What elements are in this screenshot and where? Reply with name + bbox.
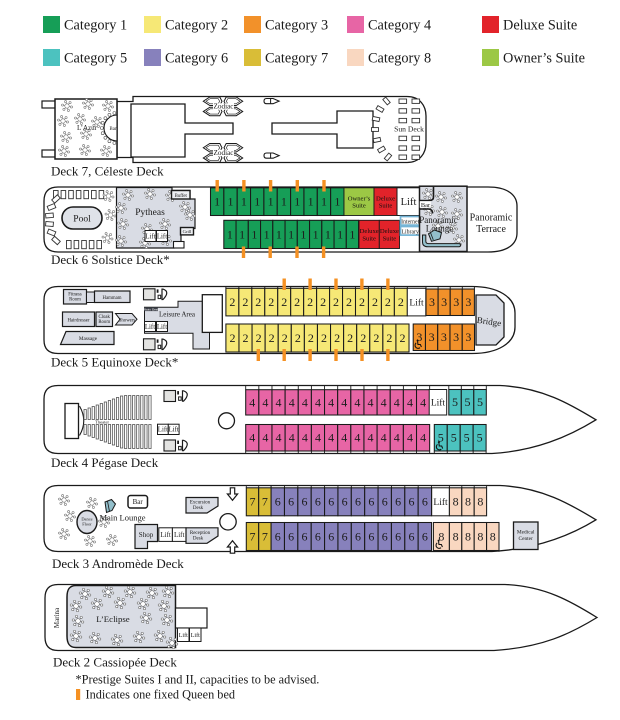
svg-text:L’Azur: L’Azur bbox=[77, 124, 98, 132]
svg-text:Lift: Lift bbox=[145, 233, 155, 240]
svg-text:6: 6 bbox=[328, 495, 334, 509]
svg-text:8: 8 bbox=[465, 495, 471, 509]
svg-text:Reception: Reception bbox=[190, 531, 211, 536]
svg-text:4: 4 bbox=[354, 395, 360, 409]
svg-text:Deck 4 Pégase Deck: Deck 4 Pégase Deck bbox=[51, 455, 159, 470]
svg-text:6: 6 bbox=[382, 495, 388, 509]
svg-text:Category 3: Category 3 bbox=[265, 18, 328, 34]
svg-text:1: 1 bbox=[321, 195, 327, 209]
svg-text:3: 3 bbox=[429, 295, 435, 309]
svg-text:6: 6 bbox=[275, 529, 281, 543]
svg-text:4: 4 bbox=[407, 395, 413, 409]
svg-text:Center: Center bbox=[519, 536, 534, 542]
svg-text:1: 1 bbox=[325, 227, 331, 241]
svg-text:3: 3 bbox=[453, 295, 459, 309]
svg-text:Suite: Suite bbox=[383, 235, 397, 242]
svg-text:1: 1 bbox=[337, 227, 343, 241]
svg-text:4: 4 bbox=[276, 395, 282, 409]
svg-text:Lift: Lift bbox=[433, 497, 448, 508]
svg-text:6: 6 bbox=[328, 529, 334, 543]
svg-text:Lift: Lift bbox=[158, 427, 168, 434]
svg-text:L’Eclipse: L’Eclipse bbox=[96, 614, 129, 624]
svg-text:Category 5: Category 5 bbox=[64, 51, 127, 67]
svg-text:8: 8 bbox=[490, 529, 496, 543]
svg-text:Deck 3 Andromède Deck: Deck 3 Andromède Deck bbox=[52, 556, 184, 571]
svg-text:Lift: Lift bbox=[157, 233, 167, 240]
svg-text:1: 1 bbox=[228, 195, 234, 209]
svg-text:*Prestige Suites I and II, cap: *Prestige Suites I and II, capacities to… bbox=[76, 673, 320, 687]
svg-text:1: 1 bbox=[214, 195, 220, 209]
svg-text:7: 7 bbox=[262, 529, 268, 543]
svg-text:Lift: Lift bbox=[160, 531, 171, 539]
svg-text:2: 2 bbox=[386, 331, 392, 345]
svg-text:Deck 6 Solstice Deck*: Deck 6 Solstice Deck* bbox=[51, 252, 170, 267]
svg-text:6: 6 bbox=[368, 495, 374, 509]
svg-text:4: 4 bbox=[368, 395, 374, 409]
svg-text:2: 2 bbox=[268, 295, 274, 309]
svg-text:Sun Deck: Sun Deck bbox=[394, 125, 424, 134]
svg-text:Room: Room bbox=[69, 298, 81, 303]
svg-text:5: 5 bbox=[465, 395, 471, 409]
svg-text:Hairdresser: Hairdresser bbox=[67, 319, 90, 324]
svg-text:Lift: Lift bbox=[145, 324, 155, 331]
svg-text:6: 6 bbox=[302, 495, 308, 509]
svg-text:3: 3 bbox=[429, 330, 435, 344]
svg-text:2: 2 bbox=[333, 295, 339, 309]
svg-text:2: 2 bbox=[320, 295, 326, 309]
svg-text:6: 6 bbox=[422, 495, 428, 509]
svg-text:4: 4 bbox=[420, 431, 426, 445]
svg-text:6: 6 bbox=[368, 529, 374, 543]
svg-text:6: 6 bbox=[275, 495, 281, 509]
svg-text:6: 6 bbox=[288, 495, 294, 509]
svg-text:1: 1 bbox=[334, 195, 340, 209]
svg-text:1: 1 bbox=[288, 227, 294, 241]
svg-text:2: 2 bbox=[385, 295, 391, 309]
svg-text:3: 3 bbox=[441, 330, 447, 344]
svg-text:7: 7 bbox=[250, 495, 256, 509]
svg-text:Deluxe: Deluxe bbox=[376, 195, 395, 202]
svg-text:Lift: Lift bbox=[431, 397, 446, 408]
svg-text:Main Lounge: Main Lounge bbox=[99, 513, 145, 523]
svg-text:Massage: Massage bbox=[79, 336, 98, 342]
svg-text:2: 2 bbox=[372, 295, 378, 309]
svg-text:2: 2 bbox=[269, 331, 275, 345]
svg-text:4: 4 bbox=[289, 431, 295, 445]
svg-text:6: 6 bbox=[422, 529, 428, 543]
svg-text:4: 4 bbox=[302, 395, 308, 409]
svg-text:8: 8 bbox=[465, 529, 471, 543]
svg-text:Lift: Lift bbox=[157, 324, 167, 331]
svg-text:1: 1 bbox=[239, 227, 245, 241]
svg-text:8: 8 bbox=[477, 495, 483, 509]
svg-text:6: 6 bbox=[315, 495, 321, 509]
svg-text:Lift: Lift bbox=[409, 297, 424, 308]
svg-text:Showers: Showers bbox=[119, 318, 136, 323]
svg-text:Panoramic: Panoramic bbox=[470, 213, 513, 224]
svg-text:Room: Room bbox=[98, 320, 110, 325]
svg-text:2: 2 bbox=[294, 295, 300, 309]
svg-text:Category 4: Category 4 bbox=[368, 18, 431, 34]
svg-text:3: 3 bbox=[465, 295, 471, 309]
svg-text:4: 4 bbox=[302, 431, 308, 445]
svg-text:6: 6 bbox=[395, 495, 401, 509]
svg-text:4: 4 bbox=[394, 395, 400, 409]
svg-text:Category 1: Category 1 bbox=[64, 18, 127, 34]
svg-text:8: 8 bbox=[477, 529, 483, 543]
svg-text:2: 2 bbox=[281, 295, 287, 309]
svg-text:6: 6 bbox=[408, 495, 414, 509]
svg-text:6: 6 bbox=[355, 529, 361, 543]
svg-text:6: 6 bbox=[288, 529, 294, 543]
svg-text:Bar: Bar bbox=[421, 202, 431, 209]
svg-text:7: 7 bbox=[250, 529, 256, 543]
svg-text:4: 4 bbox=[315, 395, 321, 409]
svg-text:1: 1 bbox=[268, 195, 274, 209]
svg-text:Lift: Lift bbox=[191, 632, 200, 639]
svg-text:1: 1 bbox=[241, 195, 247, 209]
svg-text:8: 8 bbox=[453, 495, 459, 509]
svg-text:2: 2 bbox=[307, 295, 313, 309]
svg-text:6: 6 bbox=[342, 495, 348, 509]
svg-text:Lift: Lift bbox=[169, 427, 179, 434]
svg-text:1: 1 bbox=[251, 227, 257, 241]
svg-text:3: 3 bbox=[453, 330, 459, 344]
svg-text:Photo Desk: Photo Desk bbox=[143, 307, 159, 311]
svg-text:4: 4 bbox=[262, 395, 268, 409]
svg-text:4: 4 bbox=[354, 431, 360, 445]
svg-text:Shop: Shop bbox=[139, 531, 154, 539]
svg-text:4: 4 bbox=[328, 395, 334, 409]
svg-text:2: 2 bbox=[282, 331, 288, 345]
svg-text:Owner’s: Owner’s bbox=[348, 195, 371, 202]
svg-text:Owner’s Suite: Owner’s Suite bbox=[503, 51, 585, 67]
svg-text:1: 1 bbox=[264, 227, 270, 241]
svg-text:Suite: Suite bbox=[352, 203, 366, 210]
svg-text:Library: Library bbox=[402, 229, 419, 235]
svg-text:2: 2 bbox=[346, 295, 352, 309]
svg-text:Category 8: Category 8 bbox=[368, 51, 431, 67]
svg-text:Floor: Floor bbox=[82, 522, 92, 527]
svg-text:Pool: Pool bbox=[73, 215, 91, 225]
svg-text:Zodiac: Zodiac bbox=[214, 149, 234, 157]
svg-text:Cloak: Cloak bbox=[98, 315, 110, 320]
svg-text:4: 4 bbox=[289, 395, 295, 409]
svg-text:1: 1 bbox=[313, 227, 319, 241]
svg-text:5: 5 bbox=[464, 431, 470, 445]
svg-text:2: 2 bbox=[360, 331, 366, 345]
svg-text:Indicates one fixed Queen bed: Indicates one fixed Queen bed bbox=[86, 688, 236, 702]
svg-text:2: 2 bbox=[242, 295, 248, 309]
svg-text:Lift: Lift bbox=[179, 632, 188, 639]
svg-text:Deluxe: Deluxe bbox=[380, 228, 399, 235]
svg-text:1: 1 bbox=[300, 227, 306, 241]
svg-text:6: 6 bbox=[355, 495, 361, 509]
svg-text:5: 5 bbox=[451, 431, 457, 445]
svg-text:Theater: Theater bbox=[95, 419, 109, 424]
svg-text:1: 1 bbox=[276, 227, 282, 241]
svg-text:2: 2 bbox=[229, 331, 235, 345]
svg-text:Deck 7, Céleste Deck: Deck 7, Céleste Deck bbox=[51, 164, 164, 179]
svg-text:4: 4 bbox=[368, 431, 374, 445]
svg-text:Deck 5 Equinoxe Deck*: Deck 5 Equinoxe Deck* bbox=[51, 355, 178, 370]
svg-text:2: 2 bbox=[308, 331, 314, 345]
svg-text:Category 2: Category 2 bbox=[165, 18, 228, 34]
svg-text:2: 2 bbox=[334, 331, 340, 345]
svg-text:4: 4 bbox=[328, 431, 334, 445]
svg-text:4: 4 bbox=[381, 431, 387, 445]
svg-text:1: 1 bbox=[349, 227, 355, 241]
svg-text:2: 2 bbox=[359, 295, 365, 309]
svg-text:5: 5 bbox=[477, 431, 483, 445]
svg-text:7: 7 bbox=[262, 495, 268, 509]
svg-text:4: 4 bbox=[249, 395, 255, 409]
svg-text:Lift: Lift bbox=[401, 197, 417, 208]
svg-text:1: 1 bbox=[308, 195, 314, 209]
svg-text:6: 6 bbox=[342, 529, 348, 543]
svg-text:Fitness: Fitness bbox=[68, 292, 82, 297]
svg-text:4: 4 bbox=[249, 431, 255, 445]
svg-text:3: 3 bbox=[441, 295, 447, 309]
svg-text:2: 2 bbox=[256, 331, 262, 345]
svg-text:2: 2 bbox=[373, 331, 379, 345]
svg-text:4: 4 bbox=[341, 395, 347, 409]
svg-text:4: 4 bbox=[381, 395, 387, 409]
svg-text:2: 2 bbox=[347, 331, 353, 345]
svg-text:Internet: Internet bbox=[401, 219, 419, 225]
svg-text:2: 2 bbox=[321, 331, 327, 345]
svg-text:Lift: Lift bbox=[174, 531, 185, 539]
svg-text:Buffet: Buffet bbox=[175, 194, 188, 199]
svg-text:4: 4 bbox=[394, 431, 400, 445]
svg-text:4: 4 bbox=[407, 431, 413, 445]
svg-text:Grill: Grill bbox=[183, 229, 192, 234]
svg-text:Category 6: Category 6 bbox=[165, 51, 228, 67]
svg-text:8: 8 bbox=[453, 529, 459, 543]
svg-text:6: 6 bbox=[382, 529, 388, 543]
svg-text:1: 1 bbox=[254, 195, 260, 209]
svg-text:Deluxe: Deluxe bbox=[360, 228, 379, 235]
svg-text:2: 2 bbox=[295, 331, 301, 345]
svg-text:Pytheas: Pytheas bbox=[135, 208, 165, 218]
svg-text:4: 4 bbox=[341, 431, 347, 445]
svg-text:2: 2 bbox=[399, 331, 405, 345]
svg-text:Deck 2 Cassiopée Deck: Deck 2 Cassiopée Deck bbox=[53, 655, 177, 670]
svg-text:6: 6 bbox=[408, 529, 414, 543]
svg-text:1: 1 bbox=[281, 195, 287, 209]
svg-text:1: 1 bbox=[294, 195, 300, 209]
svg-text:4: 4 bbox=[276, 431, 282, 445]
svg-text:6: 6 bbox=[395, 529, 401, 543]
svg-text:Suite: Suite bbox=[362, 235, 376, 242]
svg-text:4: 4 bbox=[262, 431, 268, 445]
svg-text:Medical: Medical bbox=[517, 530, 535, 536]
svg-text:5: 5 bbox=[477, 395, 483, 409]
svg-text:Bar: Bar bbox=[110, 127, 117, 132]
svg-text:Deluxe Suite: Deluxe Suite bbox=[503, 18, 577, 34]
svg-text:Leisure Area: Leisure Area bbox=[159, 310, 196, 318]
svg-text:3: 3 bbox=[465, 330, 471, 344]
svg-text:Bar: Bar bbox=[133, 498, 144, 506]
svg-text:Terrace: Terrace bbox=[476, 224, 506, 235]
svg-text:6: 6 bbox=[315, 529, 321, 543]
svg-text:Zodiac: Zodiac bbox=[214, 103, 234, 111]
svg-text:2: 2 bbox=[229, 295, 235, 309]
svg-text:Desk: Desk bbox=[193, 536, 204, 541]
svg-text:5: 5 bbox=[452, 395, 458, 409]
svg-text:4: 4 bbox=[315, 431, 321, 445]
svg-text:Excursion: Excursion bbox=[190, 501, 211, 506]
svg-text:Hammam: Hammam bbox=[103, 296, 122, 301]
svg-text:1: 1 bbox=[227, 227, 233, 241]
svg-text:2: 2 bbox=[255, 295, 261, 309]
svg-text:Suite: Suite bbox=[379, 203, 393, 210]
svg-text:4: 4 bbox=[420, 395, 426, 409]
svg-text:2: 2 bbox=[243, 331, 249, 345]
svg-text:2: 2 bbox=[398, 295, 404, 309]
svg-text:Category 7: Category 7 bbox=[265, 51, 328, 67]
svg-text:6: 6 bbox=[302, 529, 308, 543]
svg-text:Marina: Marina bbox=[53, 607, 61, 628]
svg-text:Desk: Desk bbox=[193, 506, 204, 511]
